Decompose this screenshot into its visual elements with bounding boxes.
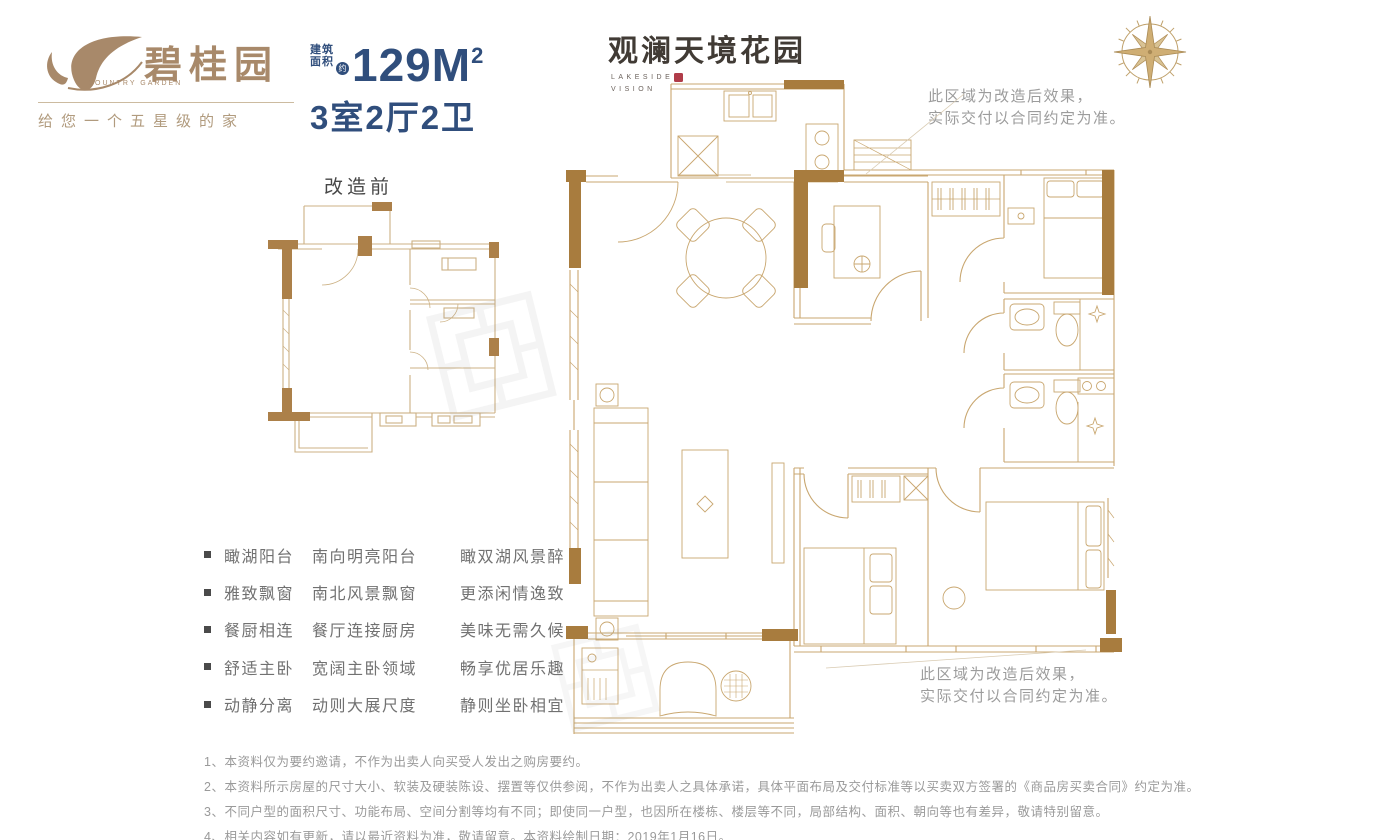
- room-layout: 3室2厅2卫: [310, 91, 484, 139]
- feature-desc2: 瞰双湖风景醉: [460, 543, 565, 567]
- square-bullet-icon: [204, 589, 211, 596]
- feature-title: 动静分离: [224, 692, 312, 716]
- brand-name-en: COUNTRY GARDEN: [88, 80, 182, 87]
- project-name: 观澜天境花园: [608, 26, 806, 70]
- feature-desc2: 静则坐卧相宜: [460, 692, 565, 716]
- square-bullet-icon: [204, 626, 211, 633]
- disclaimer-line: 3、不同户型的面积尺寸、功能布局、空间分割等均有不同；即使同一户型，也因所在楼栋…: [204, 800, 1199, 825]
- floorplan-poster: 碧桂园 COUNTRY GARDEN 给您一个五星级的家 建筑 面积 约 129…: [0, 0, 1400, 840]
- area-label-bottom: 面积: [310, 56, 334, 68]
- area-label-top: 建筑: [310, 44, 334, 56]
- area-exponent: 2: [471, 43, 484, 68]
- feature-title: 餐厨相连: [224, 617, 312, 641]
- main-floorplan: [566, 78, 1136, 743]
- feature-desc1: 餐厅连接厨房: [312, 617, 441, 641]
- disclaimer-line: 2、本资料所示房屋的尺寸大小、软装及硬装陈设、摆置等仅供参阅，不作为出卖人之具体…: [204, 775, 1199, 800]
- feature-desc1: 宽阔主卧领域: [312, 655, 441, 679]
- feature-row: 雅致飘窗 南北风景飘窗 更添闲情逸致: [204, 573, 565, 610]
- feature-desc1: 南向明亮阳台: [312, 543, 441, 567]
- feature-row: 动静分离 动则大展尺度 静则坐卧相宜: [204, 686, 565, 723]
- feature-row: 舒适主卧 宽阔主卧领域 畅享优居乐趣: [204, 648, 565, 685]
- feature-desc1: 南北风景飘窗: [312, 580, 441, 604]
- feature-desc2: 美味无需久候: [460, 617, 565, 641]
- feature-row: 餐厨相连 餐厅连接厨房 美味无需久候: [204, 611, 565, 648]
- area-number: 129M: [352, 39, 471, 91]
- brand-divider: [38, 102, 294, 103]
- swan-brush-icon: [38, 22, 150, 102]
- feature-list: 瞰湖阳台 南向明亮阳台 瞰双湖风景醉 雅致飘窗 南北风景飘窗 更添闲情逸致 餐厨…: [204, 536, 565, 723]
- feature-title: 瞰湖阳台: [224, 543, 312, 567]
- note-leader-lines: [826, 94, 1086, 668]
- feature-row: 瞰湖阳台 南向明亮阳台 瞰双湖风景醉: [204, 536, 565, 573]
- unit-title-block: 建筑 面积 约 129M2 3室2厅2卫: [310, 32, 484, 139]
- before-renovation-label: 改造前: [324, 172, 393, 199]
- approx-badge: 约: [336, 62, 349, 75]
- disclaimer-line: 1、本资料仅为要约邀请，不作为出卖人向买受人发出之购房要约。: [204, 750, 1199, 775]
- square-bullet-icon: [204, 701, 211, 708]
- feature-desc2: 更添闲情逸致: [460, 580, 565, 604]
- disclaimer-list: 1、本资料仅为要约邀请，不作为出卖人向买受人发出之购房要约。 2、本资料所示房屋…: [204, 750, 1199, 840]
- area-label: 建筑 面积: [310, 44, 334, 68]
- square-bullet-icon: [204, 551, 211, 558]
- disclaimer-line: 4、相关内容如有更新，请以最近资料为准，敬请留意。本资料绘制日期：2019年1月…: [204, 825, 1199, 840]
- feature-title: 舒适主卧: [224, 655, 312, 679]
- feature-title: 雅致飘窗: [224, 580, 312, 604]
- square-bullet-icon: [204, 663, 211, 670]
- brand-logo: 碧桂园 COUNTRY GARDEN 给您一个五星级的家: [38, 22, 300, 100]
- feature-desc1: 动则大展尺度: [312, 692, 441, 716]
- brand-tagline: 给您一个五星级的家: [38, 110, 245, 131]
- area-value: 129M2: [352, 32, 484, 89]
